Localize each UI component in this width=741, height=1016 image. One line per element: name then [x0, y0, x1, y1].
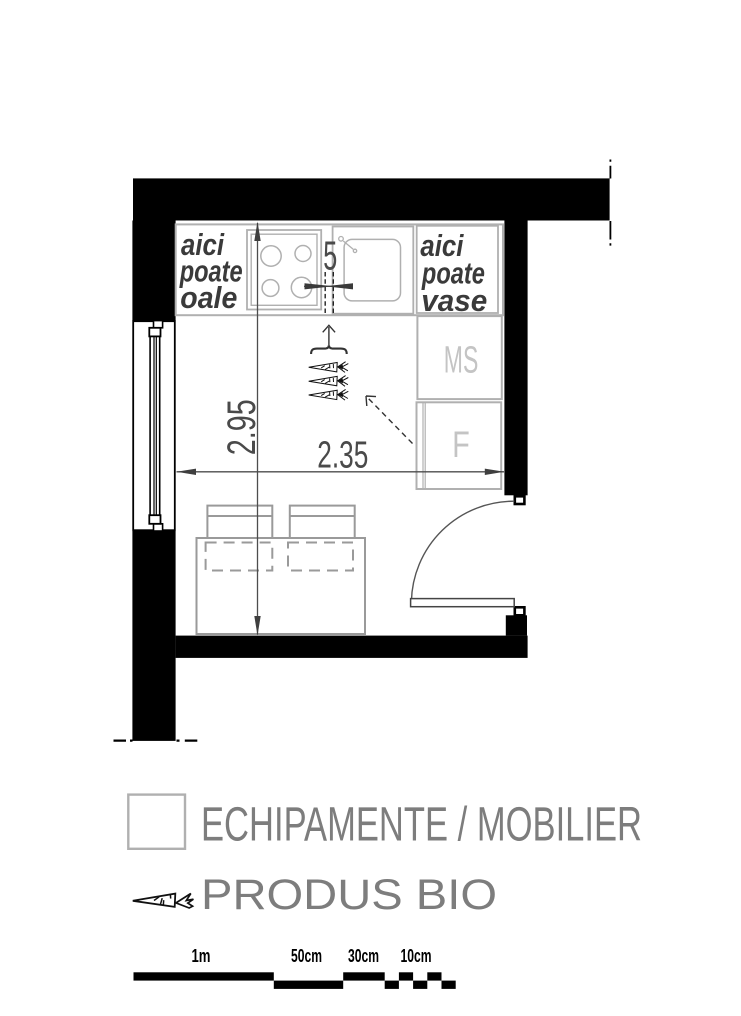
svg-text:1m: 1m: [192, 945, 211, 966]
svg-text:2.35: 2.35: [317, 434, 368, 476]
svg-text:10cm: 10cm: [401, 945, 432, 966]
svg-text:ECHIPAMENTE / MOBILIER: ECHIPAMENTE / MOBILIER: [201, 799, 642, 852]
svg-text:oale: oale: [180, 280, 237, 315]
svg-text:50cm: 50cm: [291, 945, 322, 966]
svg-text:MS: MS: [444, 339, 479, 381]
svg-text:F: F: [452, 424, 470, 465]
svg-text:vase: vase: [421, 283, 487, 318]
svg-text:5: 5: [323, 232, 337, 278]
svg-text:2.95: 2.95: [220, 399, 264, 455]
svg-text:PRODUS BIO: PRODUS BIO: [201, 871, 497, 919]
svg-text:30cm: 30cm: [348, 945, 379, 966]
